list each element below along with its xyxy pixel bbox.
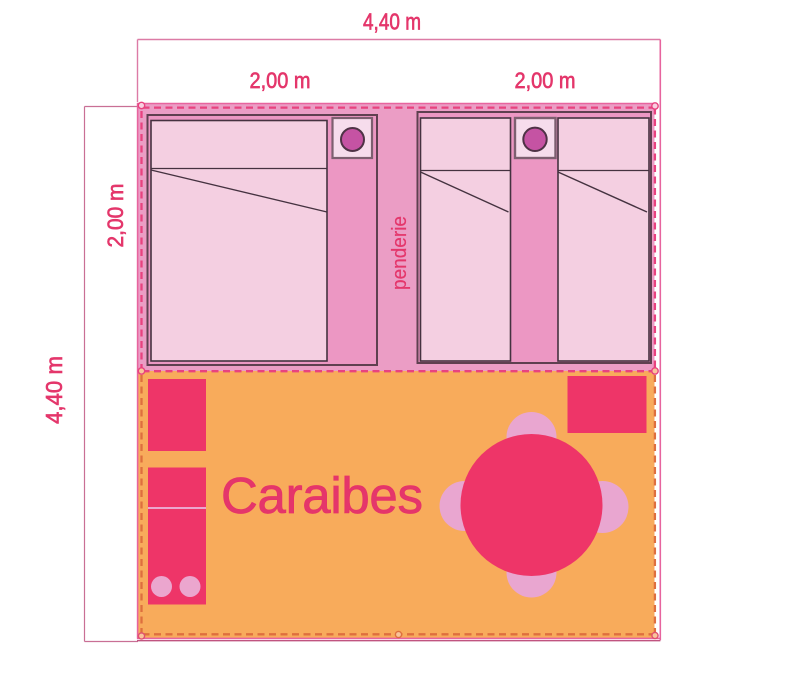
- svg-text:4,40 m: 4,40 m: [363, 9, 421, 35]
- svg-text:penderie: penderie: [389, 216, 411, 290]
- svg-text:2,00 m: 2,00 m: [103, 184, 128, 248]
- svg-text:4,40 m: 4,40 m: [41, 356, 67, 424]
- svg-text:2,00 m: 2,00 m: [250, 68, 311, 93]
- svg-text:Caraibes: Caraibes: [221, 467, 423, 524]
- svg-text:2,00 m: 2,00 m: [515, 68, 576, 93]
